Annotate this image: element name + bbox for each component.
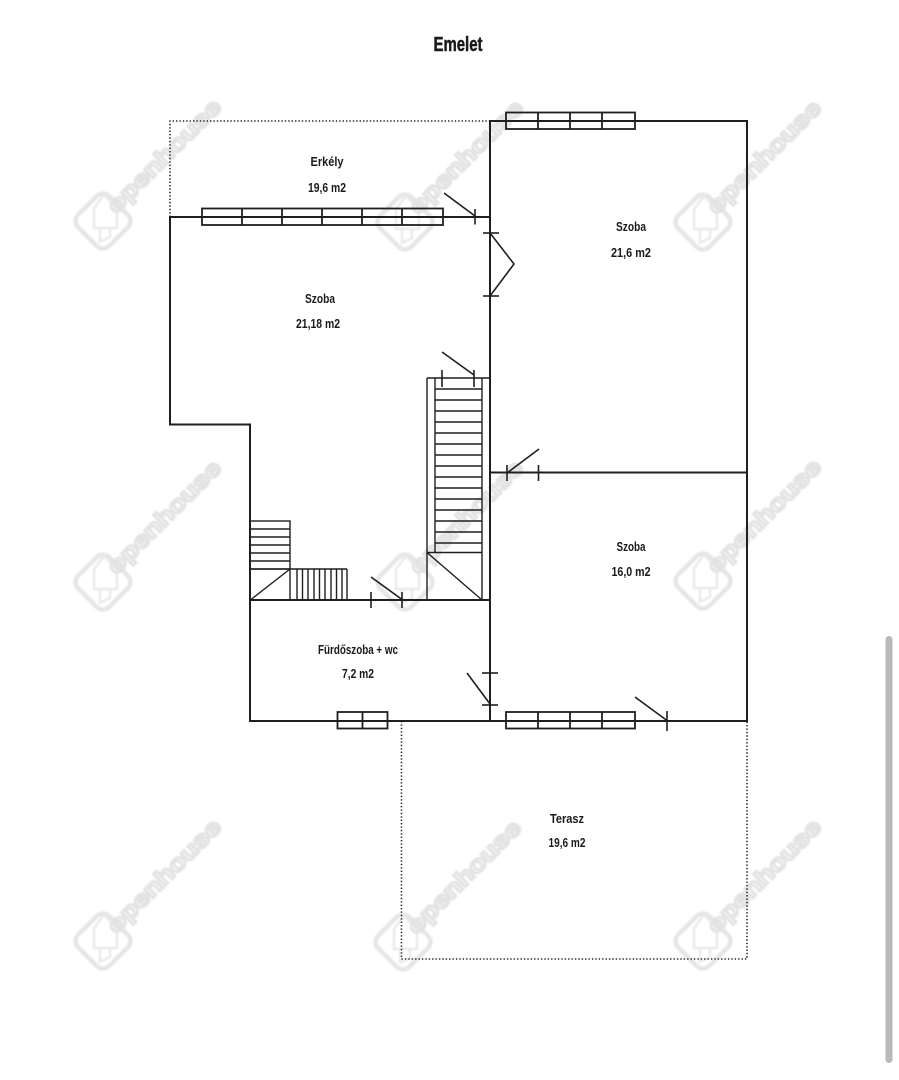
svg-text:Szoba: Szoba: [305, 291, 336, 306]
svg-text:7,2 m2: 7,2 m2: [342, 666, 374, 681]
svg-text:21,18 m2: 21,18 m2: [296, 316, 340, 331]
svg-text:Erkély: Erkély: [311, 154, 345, 169]
svg-text:Szoba: Szoba: [616, 219, 647, 234]
svg-text:Emelet: Emelet: [434, 34, 483, 56]
svg-text:19,6 m2: 19,6 m2: [308, 180, 346, 195]
svg-text:21,6 m2: 21,6 m2: [611, 245, 651, 260]
svg-text:19,6 m2: 19,6 m2: [549, 835, 586, 850]
svg-text:16,0 m2: 16,0 m2: [612, 564, 651, 579]
svg-text:Terasz: Terasz: [550, 811, 584, 826]
svg-text:Szoba: Szoba: [617, 539, 647, 554]
svg-text:Fürdőszoba + wc: Fürdőszoba + wc: [318, 642, 398, 657]
